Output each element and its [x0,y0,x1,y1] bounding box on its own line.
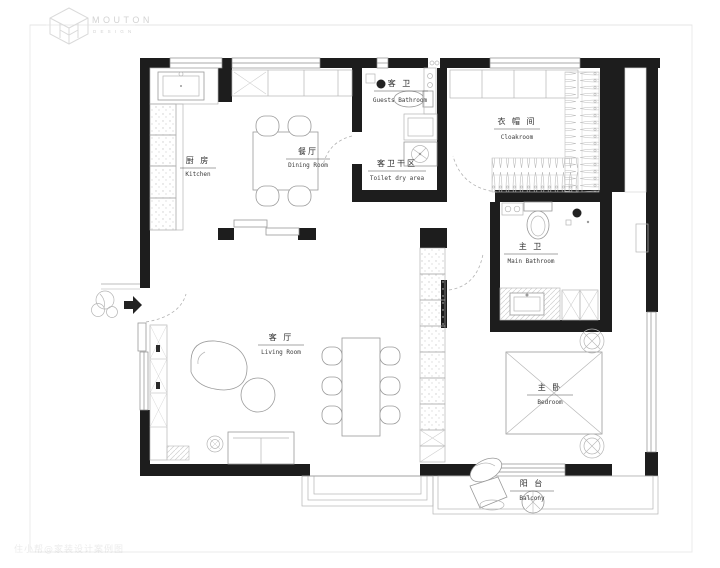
long-table [322,338,400,436]
room-toilet-dry-area: 客卫干区 Toilet dry area [368,114,437,182]
kitchen-window [170,58,222,68]
living-side-window [140,352,148,410]
watermark-text: 住小帮@家装设计案例图 [14,543,124,555]
wardrobe-hangers-bottom [492,158,578,192]
entrance-arrow-icon [124,296,142,314]
entry-plant-icon [92,291,118,318]
floor-plan-canvas: MOUTON DESIGN [0,0,720,568]
cloakroom-label: 衣 帽 间 Cloakroom [494,116,540,141]
svg-text:主 卧: 主 卧 [538,382,563,392]
room-living: 客 厅 Living Room [150,325,400,464]
side-table [207,436,223,452]
laundry-counter [404,114,437,140]
entrance [92,284,187,351]
svg-text:Guests Bathroom: Guests Bathroom [373,97,428,104]
cloakroom-window [490,58,580,68]
room-main-bathroom: 主 卫 Main Bathroom [500,202,598,320]
svg-text:Bedroom: Bedroom [537,399,563,406]
hallway-cabinet-column [420,248,483,462]
room-dining: 餐厅 Dining Room [232,70,352,206]
bedroom-side-window [647,312,656,452]
vanity-counter [500,288,560,320]
dining-window [232,58,320,68]
entry-door-leaf [138,323,146,351]
room-bedroom: 主 卧 Bedroom [506,329,604,458]
svg-text:Dining Room: Dining Room [288,162,328,169]
main-toilet-icon [524,202,552,239]
bedside-fan-icon [580,329,604,353]
dining-table [253,116,318,206]
cloakroom-cabinets [450,70,578,98]
kitchen-counter [150,104,183,230]
balcony-plant-icon [466,453,507,510]
cloakroom-door-swing [453,156,497,192]
floor-drain-icon [573,209,582,218]
svg-text:主 卫: 主 卫 [519,241,544,251]
brand-name: MOUTON [92,15,153,25]
bath-cabinets [562,290,598,320]
main-bathroom-label: 主 卫 Main Bathroom [504,241,558,265]
kitchen-sliding-door [234,220,299,235]
washbasin-icon [366,74,386,89]
brand-subtitle: DESIGN [93,29,135,34]
svg-text:衣 帽 间: 衣 帽 间 [497,116,536,126]
kitchen-sink-icon [158,72,204,100]
svg-text:厨 房: 厨 房 [186,155,211,165]
svg-text:Cloakroom: Cloakroom [501,134,534,141]
svg-text:Living Room: Living Room [261,349,301,356]
room-cloakroom: 衣 帽 间 Cloakroom [450,70,599,192]
svg-text:Toilet dry area: Toilet dry area [370,175,425,182]
room-guests-bathroom: 客 卫 Guests Bathroom [366,68,436,114]
entry-door-swing [146,294,186,322]
armchair [191,341,247,390]
room-balcony: 阳 台 Balcony [433,453,658,514]
svg-text:餐厅: 餐厅 [298,147,318,156]
svg-text:Balcony: Balcony [519,495,545,502]
sofa [228,432,294,464]
balcony-label: 阳 台 Balcony [510,478,554,502]
kitchen-label: 厨 房 Kitchen [180,155,216,178]
svg-text:Kitchen: Kitchen [185,171,211,178]
svg-text:阳 台: 阳 台 [520,478,545,488]
floor-plan-page: MOUTON DESIGN [0,0,720,568]
bathroom-window [377,58,388,68]
svg-text:客 厅: 客 厅 [269,332,294,342]
dining-sideboard [232,70,352,96]
mouton-cube-logo-icon [50,8,88,44]
svg-text:Main Bathroom: Main Bathroom [508,258,555,265]
svg-text:客卫干区: 客卫干区 [377,158,417,168]
bedroom-door-swing [449,254,483,290]
tv-cabinet [150,325,189,460]
living-room-label: 客 厅 Living Room [258,332,304,356]
bed [506,352,602,434]
bedside-fan-icon-2 [580,434,604,458]
svg-text:客 卫: 客 卫 [388,78,413,88]
brand-header: MOUTON DESIGN [50,8,153,44]
coffee-table [241,378,275,412]
bay-window [302,476,433,506]
